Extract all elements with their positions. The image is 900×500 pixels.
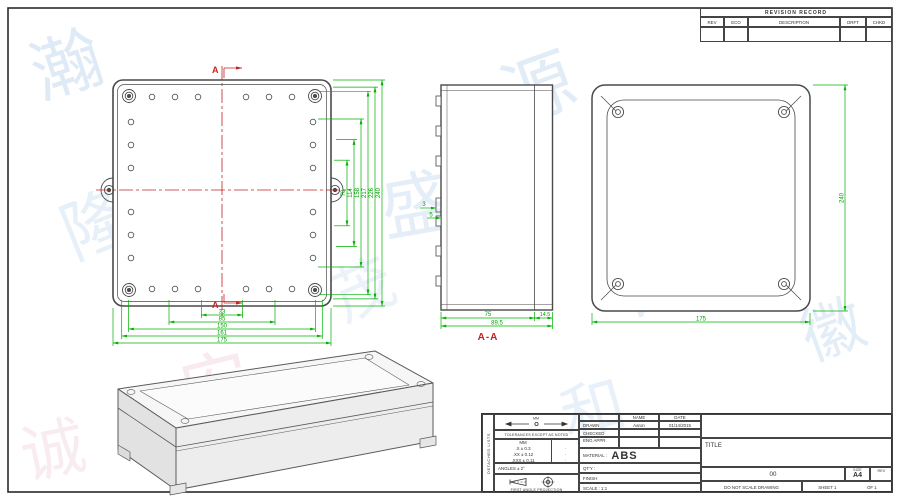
angles-tolerance: ANGLES ± 2°	[494, 463, 579, 474]
dim-label: 89.5	[491, 320, 503, 326]
eng-appr-label: ENG APPR.	[579, 437, 619, 448]
logo-cell	[701, 414, 893, 438]
projection-cell: FIRST ANGLE PROJECTION	[494, 474, 579, 493]
blank-corner	[579, 414, 619, 421]
dim-label: 175	[217, 338, 228, 344]
checked-date	[659, 429, 701, 437]
dim-label: 161	[217, 331, 228, 337]
of-label: OF 1	[867, 485, 877, 490]
title-block: DETACHED LISTS MM TOLERANCES EXCEPT AS N…	[481, 413, 892, 492]
material-label: MATERIAL :	[583, 453, 607, 458]
checked-label: CHECKED	[579, 429, 619, 437]
dim-label: 226	[369, 187, 375, 198]
finish-row: FINISH	[579, 473, 701, 483]
units-symbol-row: MM	[494, 414, 579, 430]
dim-label: 240	[376, 187, 382, 198]
rev-cell: REV	[870, 467, 893, 481]
revision-col-rev: REV	[700, 17, 724, 27]
revision-empty-row	[700, 27, 724, 42]
sheet-label: SHEET 1	[818, 485, 836, 490]
tolerance-table: MM .X ± 0.3 .XX ± 0.12 .XXX ± 0.11 · · ·	[494, 439, 579, 463]
revision-empty-row	[866, 27, 892, 42]
dim-label: 5	[429, 213, 433, 219]
drawing-number-cell: 00	[701, 467, 845, 481]
do-not-scale-cell: DO NOT SCALE DRAWING	[701, 481, 802, 493]
checked-name	[619, 429, 659, 437]
dim-label: 75	[485, 312, 492, 318]
sheet-cell: SHEET 1 OF 1	[802, 481, 893, 493]
revision-table-title: REVISION RECORD	[700, 8, 892, 17]
drawn-label: DRAWN	[579, 421, 619, 429]
dim-label: 240	[839, 192, 845, 203]
eng-appr-name	[619, 437, 659, 448]
revision-col-drft: DRFT	[840, 17, 866, 27]
revision-col-eco: ECO	[724, 17, 748, 27]
flange-tabs	[436, 96, 441, 286]
dim-label: 3	[422, 202, 426, 208]
dimension-arrows-icon: MM	[496, 415, 577, 429]
section-label: A-A	[478, 332, 499, 343]
section-view	[436, 85, 553, 310]
revision-col-chkd: CHKD	[866, 17, 892, 27]
svg-text:MM: MM	[533, 417, 539, 421]
dim-label: 158	[355, 187, 361, 198]
dim-label: 70	[341, 189, 347, 196]
dim-label: 33	[219, 310, 226, 316]
revision-col-description: DESCRIPTION	[748, 17, 840, 27]
dim-label: 150	[217, 324, 228, 330]
date-header: DATE	[659, 414, 701, 421]
projection-label: FIRST ANGLE PROJECTION	[511, 488, 563, 492]
title-cell: TITLE	[701, 438, 893, 467]
tolerance-heading: TOLERANCES EXCEPT AS NOTED	[494, 430, 579, 439]
dim-label: 217	[362, 187, 368, 198]
size-cell: SIZE A4	[845, 467, 870, 481]
dim-label: 85	[219, 317, 226, 323]
section-marker-top: A	[212, 65, 219, 75]
dim-label: 114	[348, 188, 354, 198]
material-row: MATERIAL : ABS	[579, 448, 701, 463]
drawn-date: 01/14/2015	[659, 421, 701, 429]
material-value: ABS	[611, 450, 637, 462]
size-value: A4	[853, 472, 862, 479]
drawn-name: Aaron	[619, 421, 659, 429]
back-view	[592, 85, 810, 311]
dim-label: 175	[696, 316, 707, 322]
dim-label: 14.5	[540, 312, 551, 318]
title-block-side-label: DETACHED LISTS	[482, 414, 494, 493]
first-angle-projection-icon	[502, 476, 572, 488]
revision-empty-row	[748, 27, 840, 42]
section-marker-bottom: A	[212, 300, 219, 310]
isometric-view	[118, 351, 436, 495]
revision-empty-row	[724, 27, 748, 42]
eng-appr-date	[659, 437, 701, 448]
qty-row: QT'Y :	[579, 463, 701, 473]
scale-row: SCALE : 1:1	[579, 483, 701, 493]
name-header: NAME	[619, 414, 659, 421]
drawing-sheet: 瀚 鑫 源 泰 隆 盛 昌 安 和 徽 诚 茂	[0, 0, 900, 500]
revision-empty-row	[840, 27, 866, 42]
revision-table: REVISION RECORD REV ECO DESCRIPTION DRFT…	[700, 8, 892, 42]
